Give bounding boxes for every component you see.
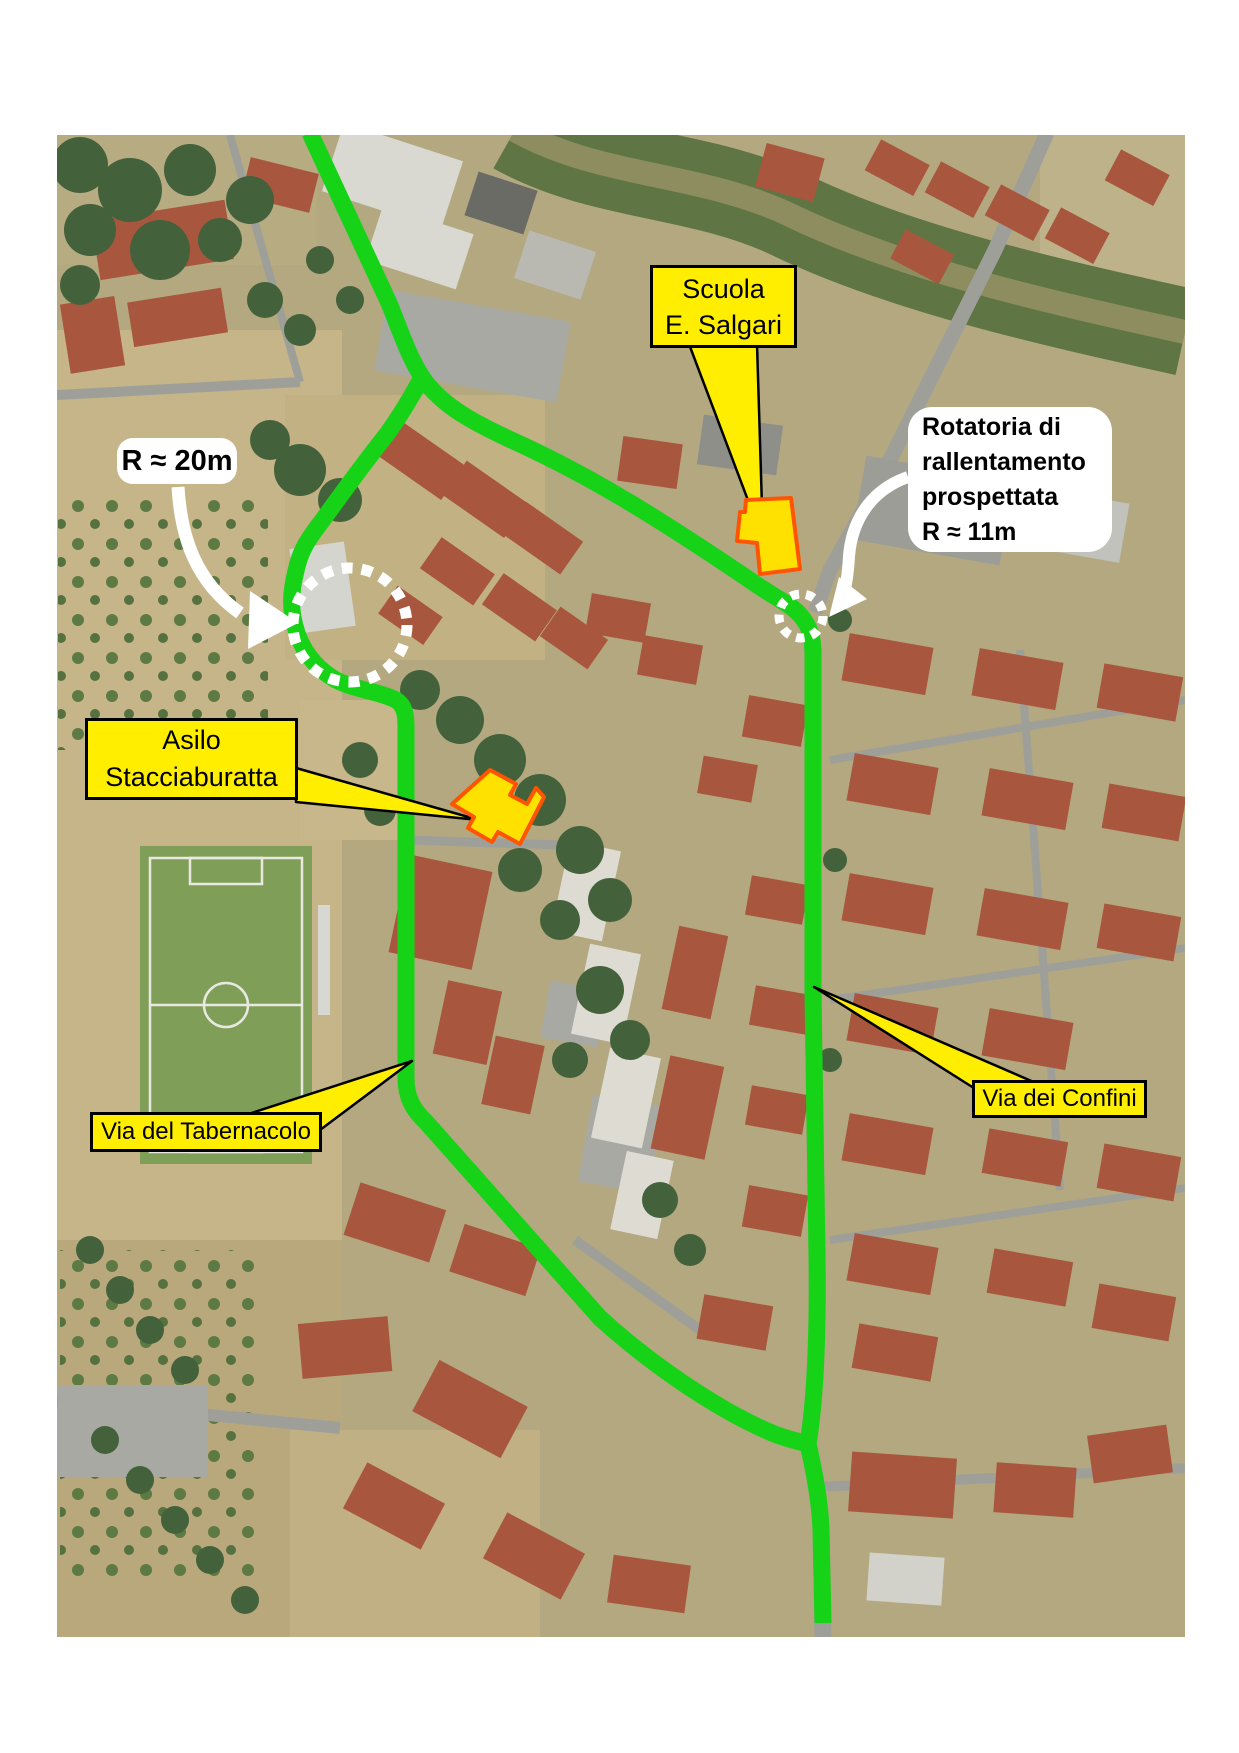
label-line: R ≈ 11m xyxy=(922,515,1016,550)
label-line: Scuola xyxy=(682,271,765,307)
label-scuola-salgari: Scuola E. Salgari xyxy=(650,265,797,348)
map-page: Scuola E. Salgari Rotatoria di rallentam… xyxy=(0,0,1239,1753)
label-line: Via dei Confini xyxy=(982,1085,1136,1113)
label-r20: R ≈ 20m xyxy=(117,438,237,484)
label-rotatoria: Rotatoria di rallentamento prospettata R… xyxy=(908,407,1112,552)
label-line: prospettata xyxy=(922,480,1058,515)
label-asilo-stacciaburatta: Asilo Stacciaburatta xyxy=(85,718,298,800)
label-line: R ≈ 20m xyxy=(121,445,232,478)
label-line: Rotatoria di xyxy=(922,410,1061,445)
label-via-dei-confini: Via dei Confini xyxy=(972,1080,1147,1118)
label-line: Via del Tabernacolo xyxy=(101,1118,311,1146)
label-line: E. Salgari xyxy=(665,307,782,343)
label-line: Stacciaburatta xyxy=(105,759,278,796)
label-line: Asilo xyxy=(162,722,221,759)
label-line: rallentamento xyxy=(922,445,1086,480)
aerial-map xyxy=(0,0,1239,1753)
label-via-del-tabernacolo: Via del Tabernacolo xyxy=(90,1112,322,1152)
